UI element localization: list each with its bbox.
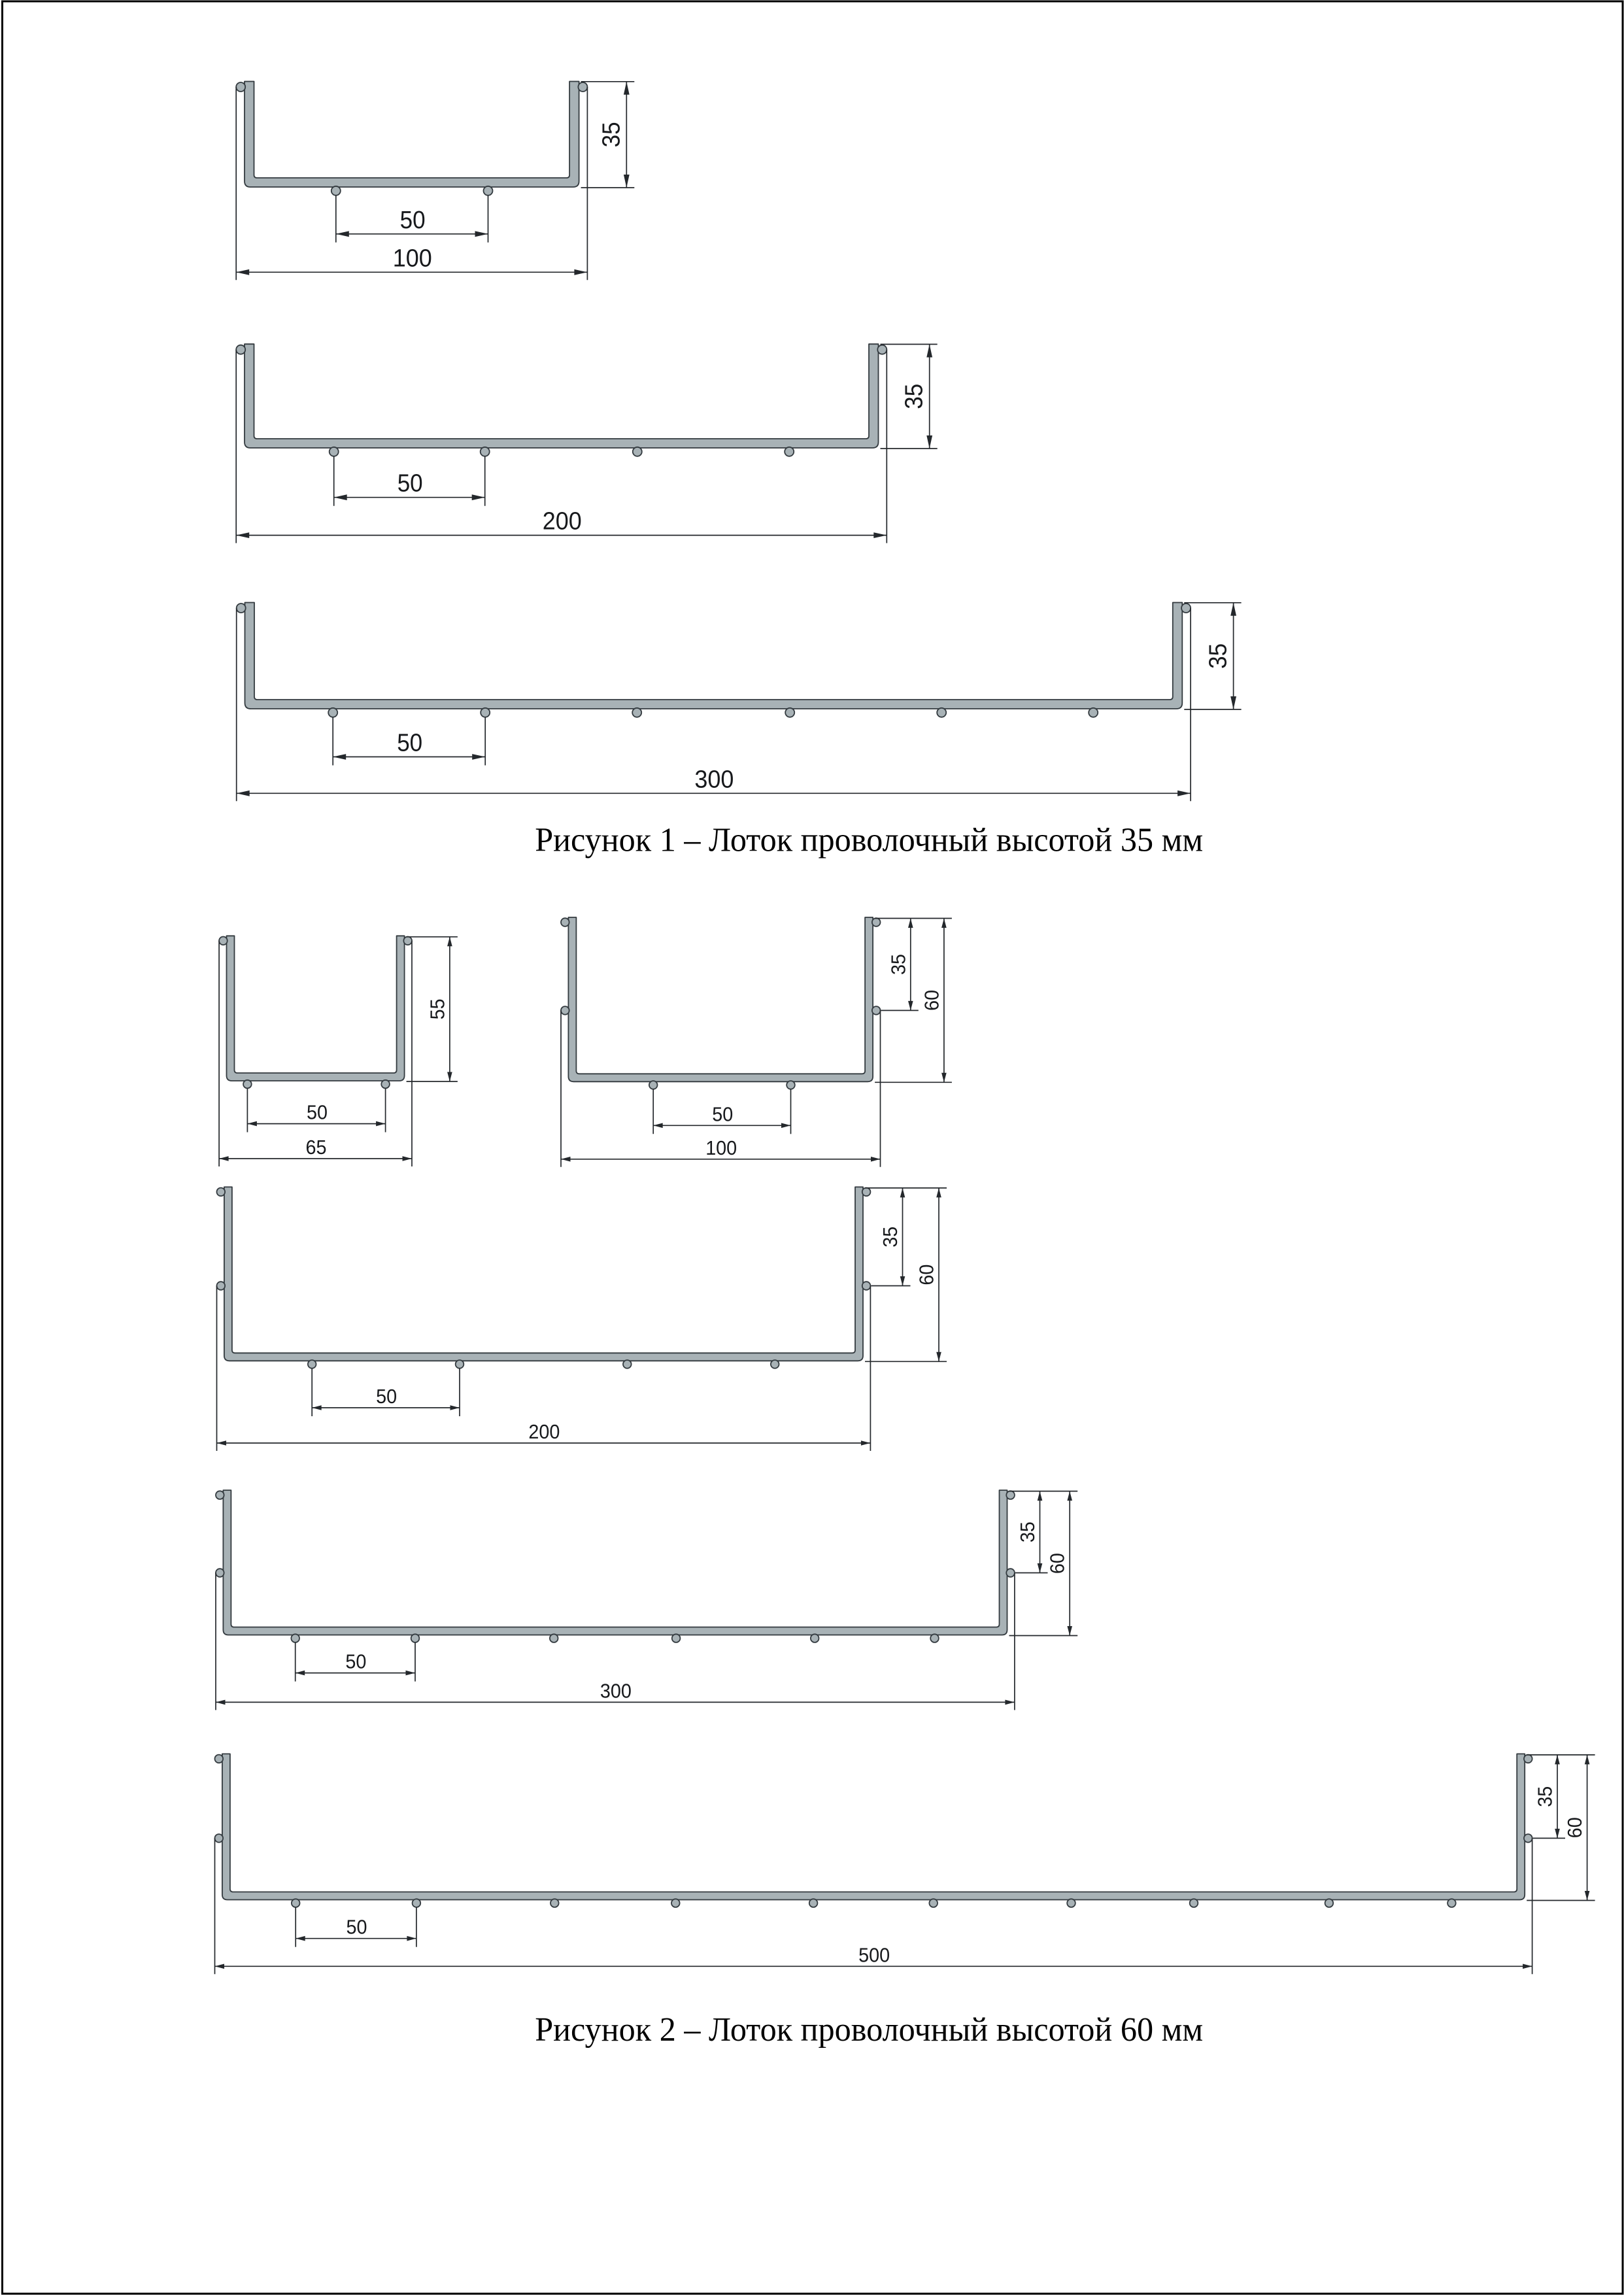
svg-text:35: 35 [1016,1521,1039,1542]
svg-text:60: 60 [920,990,943,1011]
svg-text:60: 60 [915,1265,938,1285]
svg-text:50: 50 [376,1385,397,1408]
svg-text:55: 55 [426,998,448,1019]
svg-text:35: 35 [901,384,928,409]
svg-text:50: 50 [397,730,422,757]
svg-text:50: 50 [347,1916,367,1939]
svg-text:500: 500 [858,1943,890,1966]
svg-text:50: 50 [400,207,426,234]
svg-text:35: 35 [887,954,909,975]
svg-text:300: 300 [694,766,734,793]
svg-text:100: 100 [393,245,432,272]
svg-text:200: 200 [528,1420,560,1443]
svg-text:50: 50 [398,470,423,498]
svg-text:100: 100 [705,1136,737,1159]
svg-text:35: 35 [598,122,625,147]
svg-text:50: 50 [345,1650,366,1673]
svg-text:50: 50 [712,1102,733,1125]
svg-text:200: 200 [543,508,582,535]
svg-text:60: 60 [1046,1553,1069,1574]
svg-text:60: 60 [1563,1817,1586,1838]
svg-text:50: 50 [307,1101,328,1124]
svg-text:35: 35 [1205,643,1232,669]
svg-text:35: 35 [879,1227,902,1248]
svg-text:65: 65 [306,1136,327,1159]
svg-text:Рисунок 2 – Лоток проволочный: Рисунок 2 – Лоток проволочный высотой 60… [535,2011,1203,2048]
svg-text:Рисунок 1 – Лоток проволочный: Рисунок 1 – Лоток проволочный высотой 35… [535,822,1203,859]
svg-text:300: 300 [600,1679,632,1702]
svg-text:35: 35 [1534,1786,1557,1807]
